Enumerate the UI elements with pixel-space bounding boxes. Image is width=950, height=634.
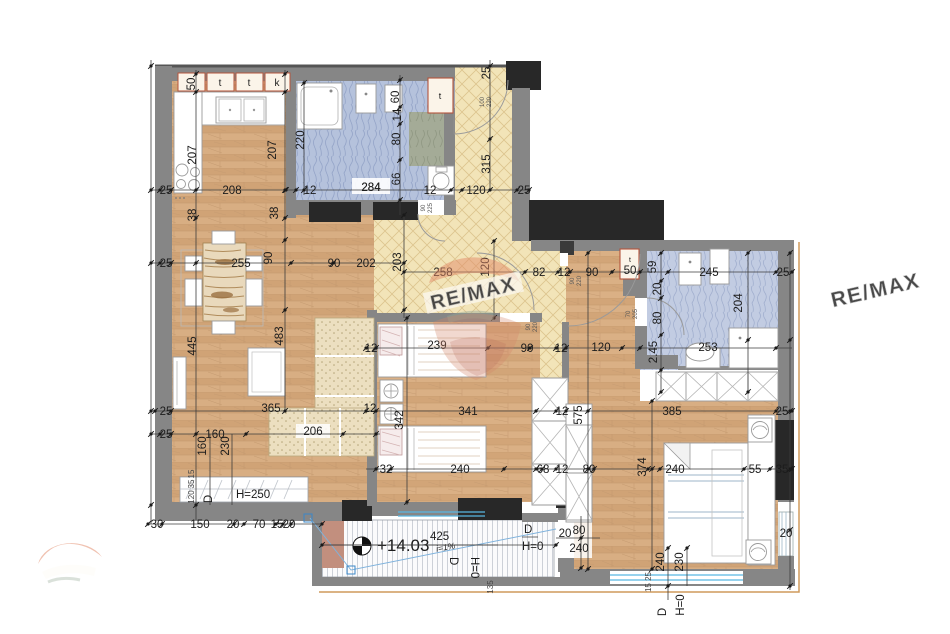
svg-text:25: 25 <box>160 258 173 270</box>
svg-text:80: 80 <box>652 312 664 325</box>
svg-text:25: 25 <box>518 185 531 197</box>
svg-text:80: 80 <box>573 525 586 537</box>
svg-text:202: 202 <box>356 258 375 270</box>
svg-text:225: 225 <box>428 202 434 213</box>
svg-text:207: 207 <box>267 140 279 159</box>
svg-text:20: 20 <box>652 283 664 296</box>
svg-text:20: 20 <box>227 519 240 531</box>
svg-text:D: D <box>203 495 215 503</box>
svg-text:38: 38 <box>269 207 281 220</box>
svg-text:H=0: H=0 <box>675 594 687 615</box>
svg-text:205: 205 <box>633 308 639 319</box>
svg-text:255: 255 <box>231 258 250 270</box>
svg-text:20: 20 <box>283 519 296 531</box>
svg-text:55: 55 <box>749 464 762 476</box>
svg-text:206: 206 <box>303 426 322 438</box>
svg-text:H=0: H=0 <box>522 541 543 553</box>
svg-text:240: 240 <box>450 464 469 476</box>
svg-text:284: 284 <box>361 182 381 194</box>
svg-text:82: 82 <box>533 267 546 279</box>
svg-text:60: 60 <box>390 91 402 104</box>
svg-text:38: 38 <box>187 209 199 222</box>
svg-text:D: D <box>524 524 532 536</box>
svg-text:12: 12 <box>424 185 437 197</box>
svg-text:575: 575 <box>573 405 585 424</box>
svg-text:H=250: H=250 <box>236 489 270 501</box>
svg-text:20: 20 <box>780 528 793 540</box>
svg-text:220: 220 <box>487 96 493 107</box>
svg-text:90: 90 <box>586 267 599 279</box>
svg-text:12: 12 <box>556 406 569 418</box>
svg-text:120: 120 <box>187 490 196 504</box>
svg-text:t: t <box>219 78 222 89</box>
svg-text:12: 12 <box>365 343 378 355</box>
svg-text:68: 68 <box>537 464 550 476</box>
svg-text:90: 90 <box>570 277 576 284</box>
svg-text:70: 70 <box>626 310 632 317</box>
svg-text:245: 245 <box>699 267 718 279</box>
svg-text:445: 445 <box>187 336 199 355</box>
svg-text:+14.03: +14.03 <box>377 536 429 555</box>
svg-text:15 25: 15 25 <box>644 571 653 592</box>
svg-text:120: 120 <box>591 342 610 354</box>
svg-text:D: D <box>447 557 459 565</box>
svg-text:25: 25 <box>160 429 173 441</box>
svg-text:32: 32 <box>380 464 393 476</box>
svg-text:25: 25 <box>776 406 789 418</box>
svg-text:30: 30 <box>151 519 164 531</box>
svg-text:70: 70 <box>253 519 266 531</box>
svg-text:90: 90 <box>526 323 532 330</box>
svg-text:80: 80 <box>391 133 403 146</box>
svg-text:315: 315 <box>481 154 493 173</box>
svg-text:D: D <box>657 608 669 616</box>
svg-text:240: 240 <box>655 552 667 571</box>
svg-text:25: 25 <box>481 67 493 80</box>
svg-text:135: 135 <box>486 580 495 594</box>
svg-text:35: 35 <box>187 479 196 488</box>
svg-text:20: 20 <box>559 528 572 540</box>
svg-text:35: 35 <box>776 464 789 476</box>
svg-text:15: 15 <box>271 519 284 531</box>
svg-text:12: 12 <box>364 403 377 415</box>
svg-text:150: 150 <box>190 519 209 531</box>
svg-text:100: 100 <box>480 96 486 107</box>
svg-text:203: 203 <box>392 252 404 271</box>
svg-text:59: 59 <box>647 261 659 274</box>
svg-text:204: 204 <box>733 293 745 313</box>
svg-text:160: 160 <box>197 436 209 455</box>
svg-text:14: 14 <box>392 108 404 121</box>
svg-text:483: 483 <box>274 326 286 345</box>
svg-text:66: 66 <box>391 173 403 186</box>
svg-text:25: 25 <box>160 406 173 418</box>
svg-text:207: 207 <box>187 145 199 164</box>
svg-text:365: 365 <box>261 403 280 415</box>
svg-text:240: 240 <box>665 464 684 476</box>
svg-text:240: 240 <box>569 543 588 555</box>
svg-text:t: t <box>629 257 631 264</box>
svg-text:50: 50 <box>624 265 637 277</box>
svg-text:12: 12 <box>555 343 568 355</box>
svg-text:90: 90 <box>328 258 341 270</box>
svg-text:12: 12 <box>556 464 569 476</box>
svg-text:90: 90 <box>421 204 427 211</box>
svg-text:341: 341 <box>458 406 477 418</box>
svg-text:230: 230 <box>220 436 232 455</box>
svg-text:25: 25 <box>777 267 790 279</box>
svg-text:374: 374 <box>637 457 649 477</box>
svg-text:230: 230 <box>674 552 686 571</box>
svg-text:t: t <box>248 78 251 89</box>
svg-text:253: 253 <box>698 342 717 354</box>
svg-text:12: 12 <box>304 185 317 197</box>
svg-text:80: 80 <box>583 464 596 476</box>
svg-text:220: 220 <box>577 275 583 286</box>
svg-text:120: 120 <box>466 185 485 197</box>
svg-text:12: 12 <box>558 267 571 279</box>
svg-text:H=0: H=0 <box>468 557 480 578</box>
svg-text:90: 90 <box>263 252 275 265</box>
svg-text:208: 208 <box>222 185 241 197</box>
svg-text:2.45: 2.45 <box>648 341 660 363</box>
svg-text:220: 220 <box>295 130 307 149</box>
svg-text:15: 15 <box>187 469 196 478</box>
svg-text:385: 385 <box>662 406 681 418</box>
svg-text:25: 25 <box>160 185 173 197</box>
svg-text:220: 220 <box>533 321 539 332</box>
svg-text:90: 90 <box>521 343 534 355</box>
svg-text:342: 342 <box>394 410 406 429</box>
